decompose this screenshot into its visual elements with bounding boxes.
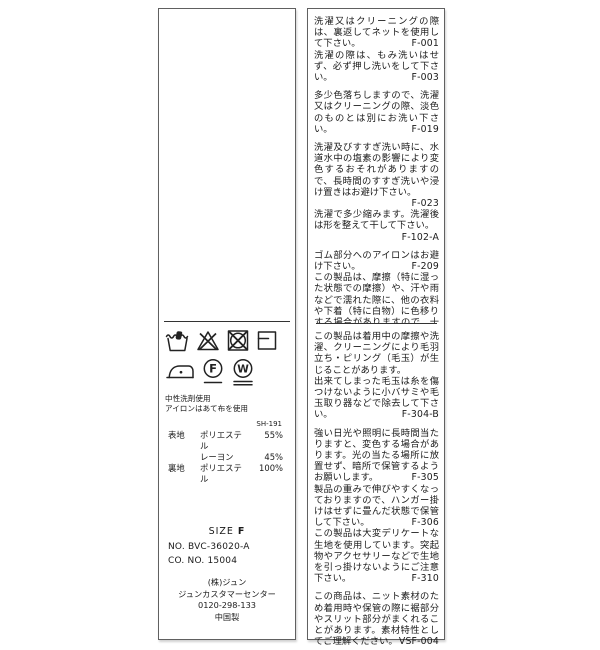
label-divider bbox=[164, 321, 290, 322]
do-not-tumble-dry-icon bbox=[226, 328, 250, 353]
care-instruction: 製品の重みで伸びやすくなっておりますので、ハンガー掛けはせずに畳んだ状態で保管し… bbox=[314, 484, 439, 529]
hand-wash-icon bbox=[165, 328, 190, 353]
composition-row: 裏地 ポリエステル 100% bbox=[168, 463, 283, 485]
care-code: F-001 bbox=[412, 38, 439, 49]
care-note-line: アイロンはあて布を使用 bbox=[165, 404, 295, 414]
care-instruction: 洗濯で多少縮みます。洗濯後は形を整えて干して下さい。F-102-A bbox=[314, 209, 439, 243]
dry-clean-f-icon: F bbox=[201, 358, 225, 385]
svg-text:F: F bbox=[209, 362, 217, 376]
care-instructions-label: 洗濯又はクリーニングの際は、裏返してネットを使用して下さい。F-001洗濯の際は… bbox=[307, 8, 445, 640]
size-value: F bbox=[238, 526, 246, 537]
care-note-line: 中性洗剤使用 bbox=[165, 394, 295, 404]
care-instruction: この製品は着用中の摩擦や洗濯、クリーニングにより毛羽立ち・ピリング（毛玉）が生じ… bbox=[314, 331, 439, 376]
care-symbols-row-1 bbox=[159, 328, 295, 353]
quality-code: SH-191 bbox=[159, 420, 295, 428]
care-instruction: 強い日光や照明に長時間当たりますと、変色する場合があります。光の当たる場所に放置… bbox=[314, 428, 439, 484]
country-of-origin: 中国製 bbox=[159, 612, 295, 624]
care-code: F-306 bbox=[412, 517, 439, 528]
care-instruction: 多少色落ちしますので、洗濯又はクリーニングの際、淡色のものとは別にお洗い下さい。… bbox=[314, 90, 439, 135]
care-code: F-310 bbox=[412, 573, 439, 584]
wet-clean-w-icon: W bbox=[231, 358, 255, 387]
composition-percent: 45% bbox=[249, 452, 283, 463]
company-name: (株)ジュン bbox=[159, 577, 295, 589]
care-code: F-003 bbox=[412, 72, 439, 83]
care-code: VSF-004 bbox=[399, 636, 439, 647]
care-code: F-023 bbox=[412, 198, 439, 209]
manufacturer-info: (株)ジュン ジュンカスタマーセンター 0120-298-133 中国製 bbox=[159, 577, 295, 623]
company-number: CO. NO. 15004 bbox=[159, 556, 295, 566]
care-instruction: 出来てしまった毛玉は糸を傷つけないように小バサミや毛玉取り器などで除去して下さい… bbox=[314, 376, 439, 421]
care-instructions-lower: この製品は着用中の摩擦や洗濯、クリーニングにより毛羽立ち・ピリング（毛玉）が生じ… bbox=[314, 324, 439, 647]
care-instruction: 洗濯の際は、もみ洗いはせず、必ず押し洗いをして下さい。F-003 bbox=[314, 50, 439, 84]
label-blank-area bbox=[159, 9, 295, 321]
care-instruction: この商品は、ニット素材のため着用時や保管の際に裾部分やスリット部分がまくれること… bbox=[314, 591, 439, 647]
garment-info-label: FW 中性洗剤使用 アイロンはあて布を使用 SH-191 表地 ポリエステル 5… bbox=[158, 8, 296, 640]
composition-part bbox=[168, 452, 200, 463]
care-instruction: 洗濯又はクリーニングの際は、裏返してネットを使用して下さい。F-001 bbox=[314, 16, 439, 50]
composition-row: 表地 ポリエステル 55% bbox=[168, 430, 283, 452]
composition-material: レーヨン bbox=[200, 452, 249, 463]
iron-low-icon bbox=[165, 358, 195, 382]
care-notes: 中性洗剤使用 アイロンはあて布を使用 bbox=[159, 394, 295, 413]
care-symbols-row-2: FW bbox=[159, 358, 295, 387]
item-number: NO. BVC-36020-A bbox=[159, 542, 295, 552]
care-instruction: 洗濯及びすすぎ洗い時に、水道水中の塩素の影響により変色するおそれがありますので、… bbox=[314, 142, 439, 209]
care-instructions-upper: 洗濯又はクリーニングの際は、裏返してネットを使用して下さい。F-001洗濯の際は… bbox=[314, 16, 439, 323]
size-label: SIZE bbox=[209, 526, 234, 537]
fabric-composition: 表地 ポリエステル 55% レーヨン 45% 裏地 ポリエステル 100% bbox=[159, 428, 295, 485]
care-instruction: この製品は大変デリケートな生地を使用しています。突起物やアクセサリーなどで生地を… bbox=[314, 528, 439, 584]
composition-row: レーヨン 45% bbox=[168, 452, 283, 463]
composition-material: ポリエステル bbox=[200, 430, 249, 452]
care-code: F-305 bbox=[412, 472, 439, 483]
care-code: F-102-A bbox=[402, 232, 439, 243]
customer-center: ジュンカスタマーセンター bbox=[159, 589, 295, 601]
composition-part: 表地 bbox=[168, 430, 200, 452]
phone-number: 0120-298-133 bbox=[159, 600, 295, 612]
composition-percent: 55% bbox=[249, 430, 283, 452]
size-line: SIZEF bbox=[159, 526, 295, 537]
dry-flat-icon bbox=[256, 328, 278, 353]
care-code: F-019 bbox=[412, 124, 439, 135]
do-not-bleach-icon bbox=[196, 328, 220, 353]
composition-part: 裏地 bbox=[168, 463, 200, 485]
care-instruction: この製品は、摩擦（特に湿った状態での摩擦）や、汗や雨などで濡れた際に、他の衣料や… bbox=[314, 272, 439, 323]
composition-percent: 100% bbox=[249, 463, 283, 485]
composition-material: ポリエステル bbox=[200, 463, 249, 485]
care-instruction: ゴム部分へのアイロンはお避け下さい。F-209 bbox=[314, 250, 439, 272]
svg-text:W: W bbox=[237, 363, 249, 375]
care-code: F-304-B bbox=[402, 409, 439, 420]
care-code: F-209 bbox=[412, 261, 439, 272]
